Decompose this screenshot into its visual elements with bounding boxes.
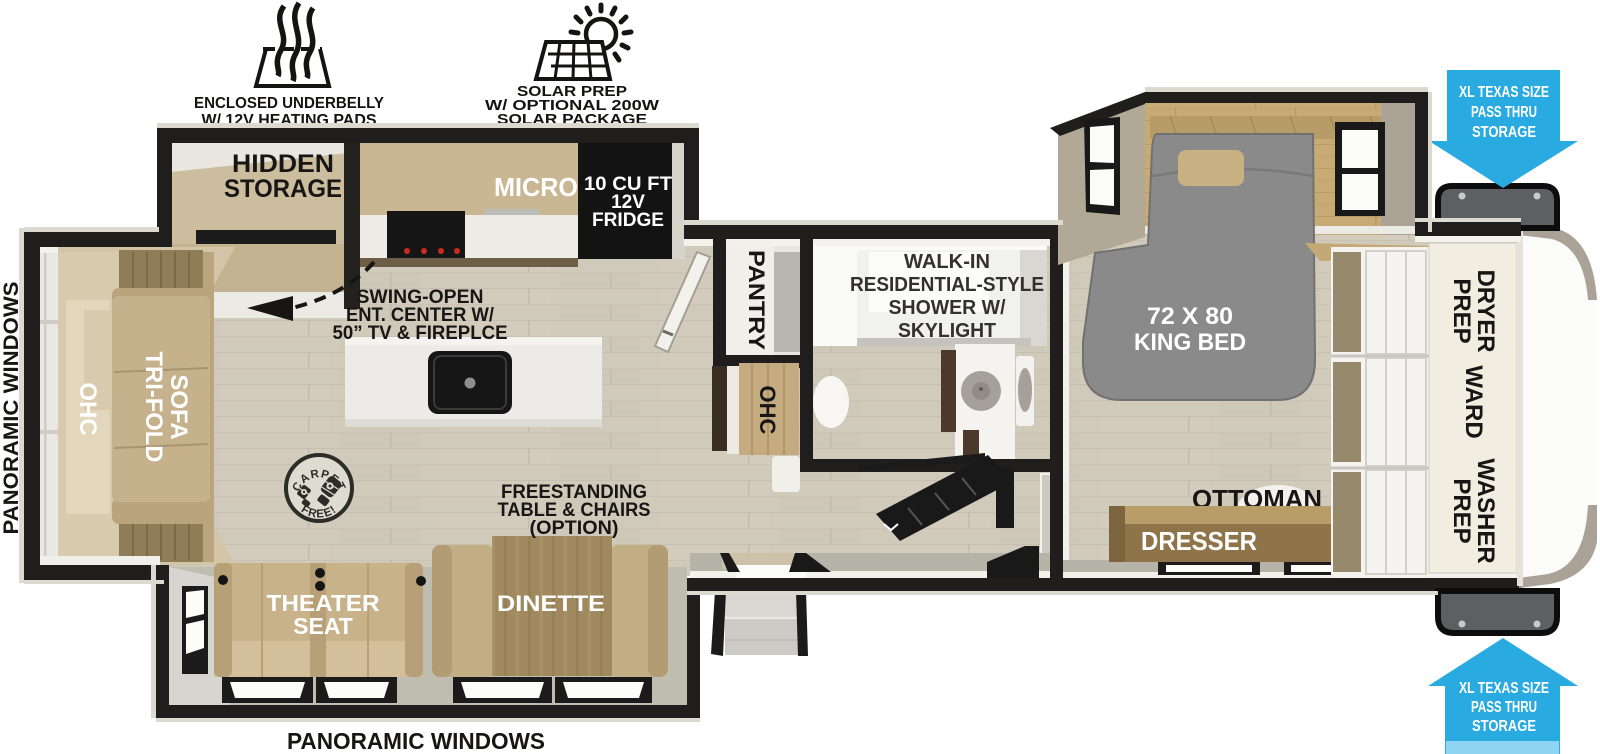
svg-text:WASHER: WASHER	[1472, 458, 1499, 563]
svg-text:FRIDGE: FRIDGE	[592, 210, 664, 231]
svg-text:XL TEXAS SIZE: XL TEXAS SIZE	[1459, 84, 1549, 101]
svg-text:RESIDENTIAL-STYLE: RESIDENTIAL-STYLE	[850, 274, 1044, 296]
svg-text:DINETTE: DINETTE	[497, 591, 605, 616]
svg-text:KING BED: KING BED	[1134, 329, 1246, 356]
svg-text:WALK-IN: WALK-IN	[904, 251, 990, 273]
svg-text:TRI-FOLD: TRI-FOLD	[140, 352, 167, 463]
svg-text:SEAT: SEAT	[293, 613, 353, 639]
svg-text:PANORAMIC WINDOWS: PANORAMIC WINDOWS	[287, 728, 545, 754]
svg-text:HIDDEN: HIDDEN	[232, 150, 334, 178]
svg-text:(OPTION): (OPTION)	[530, 518, 619, 539]
svg-text:50” TV & FIREPLCE: 50” TV & FIREPLCE	[333, 323, 508, 344]
svg-text:72 X 80: 72 X 80	[1147, 303, 1233, 330]
svg-text:XL TEXAS SIZE: XL TEXAS SIZE	[1459, 680, 1549, 697]
svg-text:SOFA: SOFA	[165, 374, 192, 439]
svg-text:PASS THRU: PASS THRU	[1471, 104, 1537, 121]
svg-text:OHC: OHC	[74, 382, 101, 435]
svg-text:SHOWER W/: SHOWER W/	[889, 297, 1006, 319]
svg-text:PASS THRU: PASS THRU	[1471, 699, 1537, 716]
svg-text:MICRO: MICRO	[494, 172, 578, 202]
svg-text:ENCLOSED UNDERBELLY: ENCLOSED UNDERBELLY	[194, 95, 384, 112]
svg-text:STORAGE: STORAGE	[1472, 718, 1536, 735]
svg-text:PANTRY: PANTRY	[744, 250, 769, 350]
svg-text:PREP: PREP	[1448, 478, 1475, 543]
svg-text:STORAGE: STORAGE	[1472, 124, 1536, 141]
svg-text:DRYER: DRYER	[1472, 269, 1499, 352]
svg-text:STORAGE: STORAGE	[224, 175, 342, 203]
svg-text:SKYLIGHT: SKYLIGHT	[898, 320, 996, 342]
svg-text:PREP: PREP	[1448, 278, 1475, 343]
svg-text:DRESSER: DRESSER	[1141, 526, 1257, 556]
svg-text:WARD: WARD	[1460, 365, 1487, 438]
svg-text:OHC: OHC	[755, 386, 780, 435]
